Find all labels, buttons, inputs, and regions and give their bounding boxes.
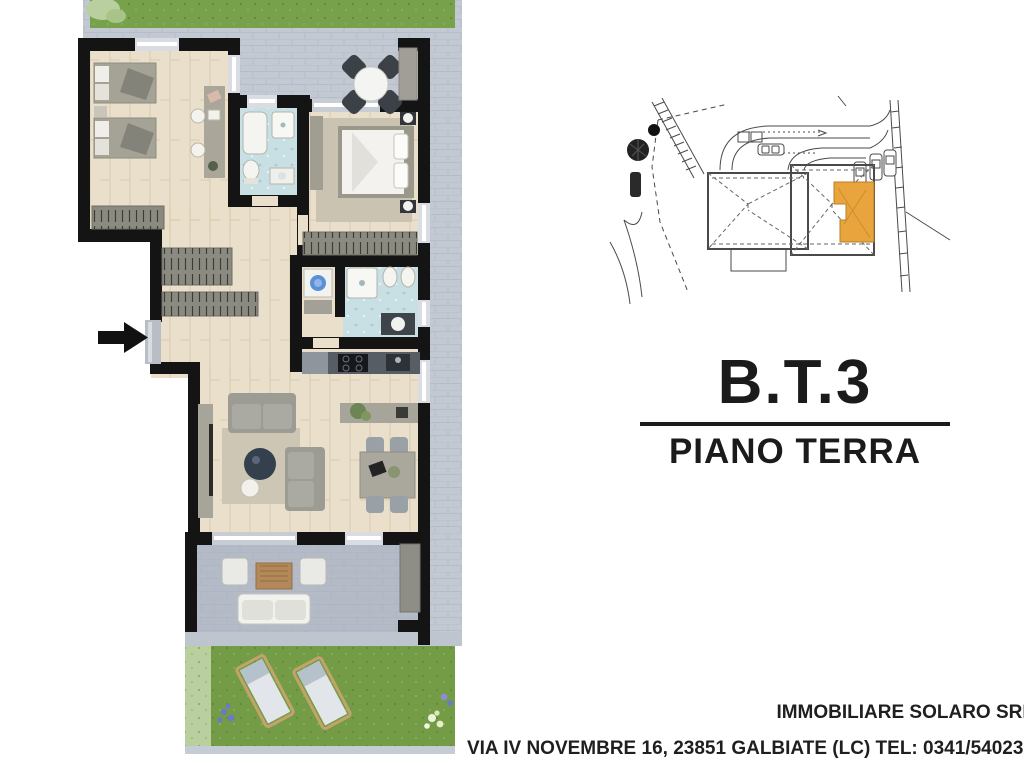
outdoor-sofa: [238, 594, 310, 624]
sofa-1: [228, 393, 296, 433]
nightstand: [94, 106, 107, 117]
lawn-strip-top: [86, 0, 455, 28]
hall-wardrobe-2: [162, 292, 258, 316]
agency-address: VIA IV NOVEMBRE 16, 23851 GALBIATE (LC) …: [467, 738, 1024, 760]
patio-cabinet: [399, 48, 417, 100]
entry-door: [145, 320, 161, 364]
single-bed-1: [94, 63, 156, 103]
sofa-2: [285, 447, 325, 511]
agency-footer: IMMOBILIARE SOLARO SRL VIA IV NOVEMBRE 1…: [467, 702, 1024, 760]
garden-edge: [185, 746, 455, 754]
outdoor-armchair-1: [222, 558, 248, 585]
title-block: B.T.3 PIANO TERRA: [640, 348, 950, 472]
master-cabinet: [310, 116, 323, 190]
garden: [185, 646, 455, 754]
laundry-closet: [304, 269, 332, 314]
nightstand-lamp-1: [400, 112, 416, 125]
desk-stool-1: [191, 109, 205, 123]
title-divider: [640, 422, 950, 426]
nightstand-lamp-2: [400, 200, 416, 213]
floor-title: PIANO TERRA: [640, 432, 950, 472]
cooktop: [338, 354, 368, 372]
toilet-2: [383, 267, 397, 287]
dining-chair: [390, 496, 408, 513]
site-plan-svg: [608, 92, 952, 307]
dining-chair: [366, 437, 384, 454]
floor-plan-svg: [0, 0, 470, 768]
dining-chair: [390, 437, 408, 454]
coffee-table: [244, 448, 276, 480]
master-wardrobe: [303, 232, 417, 255]
planter: [400, 544, 420, 612]
outdoor-armchair-2: [300, 558, 326, 585]
toilet: [243, 160, 259, 180]
desk-plant: [208, 161, 218, 171]
bedroom-wardrobe: [92, 206, 164, 229]
floor-plan: [0, 0, 470, 768]
fridge: [302, 352, 328, 374]
car-left: [630, 172, 641, 197]
console-table: [340, 403, 418, 423]
dining-chair: [366, 496, 384, 513]
double-bed: [338, 126, 414, 198]
tree-small-icon: [648, 124, 660, 136]
outdoor-coffee-table: [256, 563, 292, 589]
bathtub: [243, 112, 267, 154]
agency-name: IMMOBILIARE SOLARO SRL: [467, 702, 1024, 724]
single-bed-2: [94, 118, 156, 158]
site-plan: [608, 92, 952, 307]
kitchen: [302, 352, 420, 374]
stairs-strip: [652, 98, 704, 178]
door-bathroom-1: [252, 196, 278, 206]
door-bathroom-2: [313, 338, 339, 348]
side-table: [241, 479, 259, 497]
hall-wardrobe-1: [162, 248, 232, 285]
entrance-arrow: [98, 322, 148, 353]
driveway: [720, 110, 890, 170]
tv: [209, 424, 213, 496]
master-bedroom: [303, 112, 417, 255]
tv-sideboard: [198, 404, 213, 518]
flyer-page: { "title": { "unit": "B.T.3", "floor": "…: [0, 0, 1024, 768]
round-table: [354, 67, 388, 101]
bidet: [401, 267, 415, 287]
unit-title: B.T.3: [640, 348, 950, 418]
desk-stool-2: [191, 143, 205, 157]
dining-table: [360, 452, 415, 498]
parcel-boundary: [652, 120, 688, 292]
